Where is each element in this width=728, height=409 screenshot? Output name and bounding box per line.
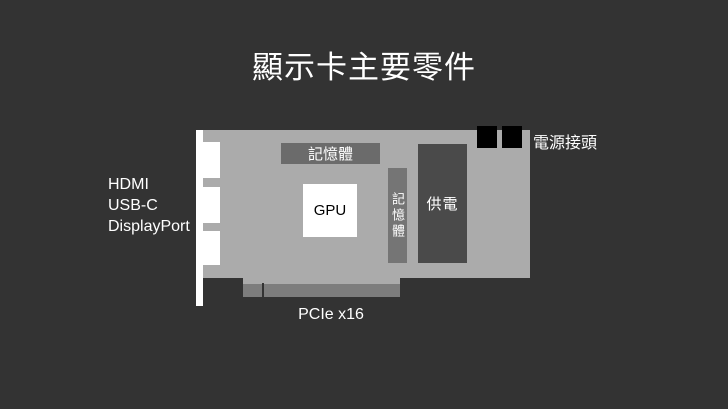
page-title: 顯示卡主要零件 bbox=[0, 42, 728, 87]
gpu-chip: GPU bbox=[303, 184, 357, 237]
slide: 顯示卡主要零件 記憶體 GPU 記憶體 供電 電源接頭 bbox=[0, 0, 728, 409]
displayport-label: DisplayPort bbox=[108, 218, 190, 236]
memory-chip-side: 記憶體 bbox=[388, 168, 407, 263]
pcie-slot-label: PCIe x16 bbox=[256, 306, 406, 324]
hdmi-label: HDMI bbox=[108, 176, 149, 194]
displayport-port-slot bbox=[197, 231, 220, 265]
memory-chip-top: 記憶體 bbox=[281, 143, 380, 164]
power-connector-block bbox=[502, 126, 522, 148]
power-delivery-block: 供電 bbox=[418, 144, 467, 263]
usb-c-label: USB-C bbox=[108, 197, 158, 215]
power-connector-label: 電源接頭 bbox=[533, 129, 597, 153]
usb-c-port-slot bbox=[197, 187, 220, 223]
pcie-edge-connector bbox=[243, 284, 400, 297]
memory-chip-side-label: 記憶體 bbox=[388, 192, 407, 240]
power-connector-block bbox=[477, 126, 497, 148]
memory-chip-top-label: 記憶體 bbox=[308, 143, 353, 164]
power-delivery-label: 供電 bbox=[426, 193, 458, 214]
gpu-chip-label: GPU bbox=[314, 202, 347, 219]
pcie-key-notch bbox=[262, 283, 264, 298]
hdmi-port-slot bbox=[197, 142, 220, 178]
